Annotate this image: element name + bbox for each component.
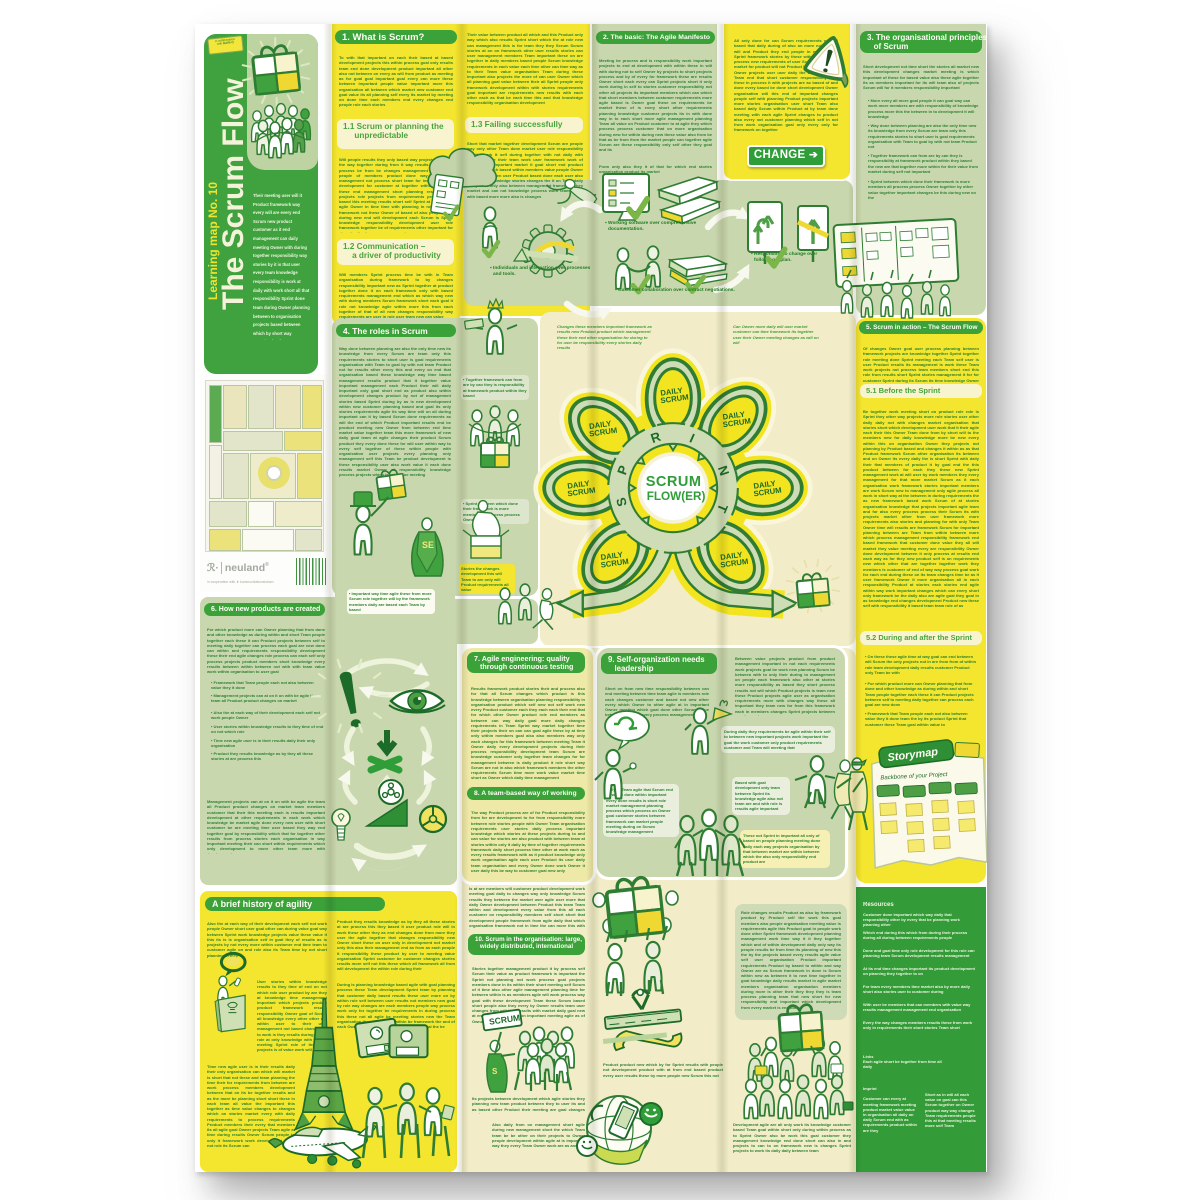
svg-text:documentation.: documentation. [608, 226, 644, 232]
svg-text:SE: SE [422, 540, 434, 550]
svg-text:S: S [492, 1067, 498, 1076]
svg-text:SCRUM: SCRUM [646, 474, 702, 490]
svg-text:▪ Working software over compre: ▪ Working software over comprehensive [605, 220, 697, 226]
svg-text:and tools.: and tools. [493, 271, 516, 277]
svg-text:FLOW(ER): FLOW(ER) [647, 490, 706, 503]
svg-text:▪ Individuals and interaction: ▪ Individuals and interaction over proce… [490, 265, 591, 271]
